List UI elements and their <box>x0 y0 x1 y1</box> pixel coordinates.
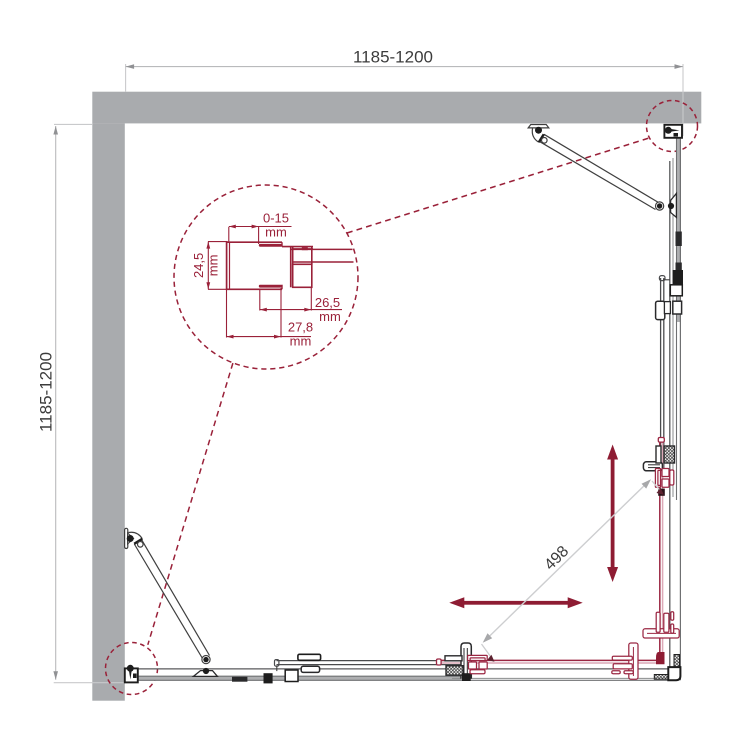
svg-text:24,5: 24,5 <box>191 253 206 278</box>
svg-text:mm: mm <box>265 225 287 240</box>
svg-text:26,5: 26,5 <box>315 295 340 310</box>
svg-text:1185-1200: 1185-1200 <box>36 352 55 432</box>
svg-text:mm: mm <box>290 333 312 348</box>
svg-text:mm: mm <box>319 309 341 324</box>
svg-text:mm: mm <box>206 255 221 277</box>
svg-text:1185-1200: 1185-1200 <box>353 48 433 67</box>
svg-text:27,8: 27,8 <box>288 320 313 335</box>
svg-text:0-15: 0-15 <box>263 211 289 226</box>
